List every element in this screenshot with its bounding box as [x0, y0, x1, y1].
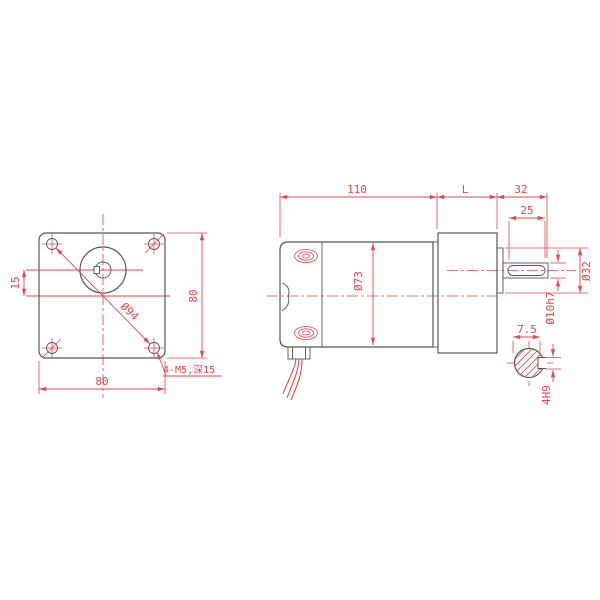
endcap-grommets: [295, 250, 318, 340]
keyway-length-label: 25: [520, 204, 533, 217]
gearbox-adapter-plate: [433, 242, 438, 347]
gearbox-length-label: L: [462, 183, 469, 196]
drawing-canvas: Ø94 4-M5,深15 15 80 80: [0, 0, 600, 600]
grommet-icon: [299, 252, 314, 260]
offset-label: 15: [9, 276, 22, 289]
mounting-holes-label: 4-M5,深15: [163, 364, 215, 376]
shaft-diameter-label: Ø10h7: [544, 291, 557, 324]
grommet-icon: [299, 329, 314, 337]
motor-body-outline: [280, 242, 433, 347]
shaft-keyway-mark: [94, 267, 100, 274]
height-label: 80: [187, 289, 200, 302]
motor-length-label: 110: [347, 183, 367, 196]
flat-height-label: 7.5: [517, 323, 537, 336]
pilot-diameter-label: Ø32: [580, 261, 593, 281]
cable-gland: [288, 347, 310, 359]
motor-diameter-label: Ø73: [352, 271, 365, 291]
keyway-width-label: 4H9: [540, 385, 553, 405]
section-keyway-notch: [538, 358, 546, 369]
shaft-section-view: 7.5 4H9: [496, 323, 561, 405]
grommet-icon: [303, 254, 310, 258]
width-label: 80: [95, 375, 108, 388]
shaft-length-label: 32: [514, 183, 527, 196]
bolt-circle-label: Ø94: [118, 300, 142, 324]
technical-drawing: Ø94 4-M5,深15 15 80 80: [0, 0, 600, 600]
endcap-terminal-notch: [282, 283, 289, 311]
lead-wires: [283, 359, 302, 400]
grommet-icon: [303, 331, 310, 335]
gearbox-outline: [438, 233, 497, 353]
front-view: Ø94 4-M5,深15 15 80 80: [9, 214, 222, 398]
